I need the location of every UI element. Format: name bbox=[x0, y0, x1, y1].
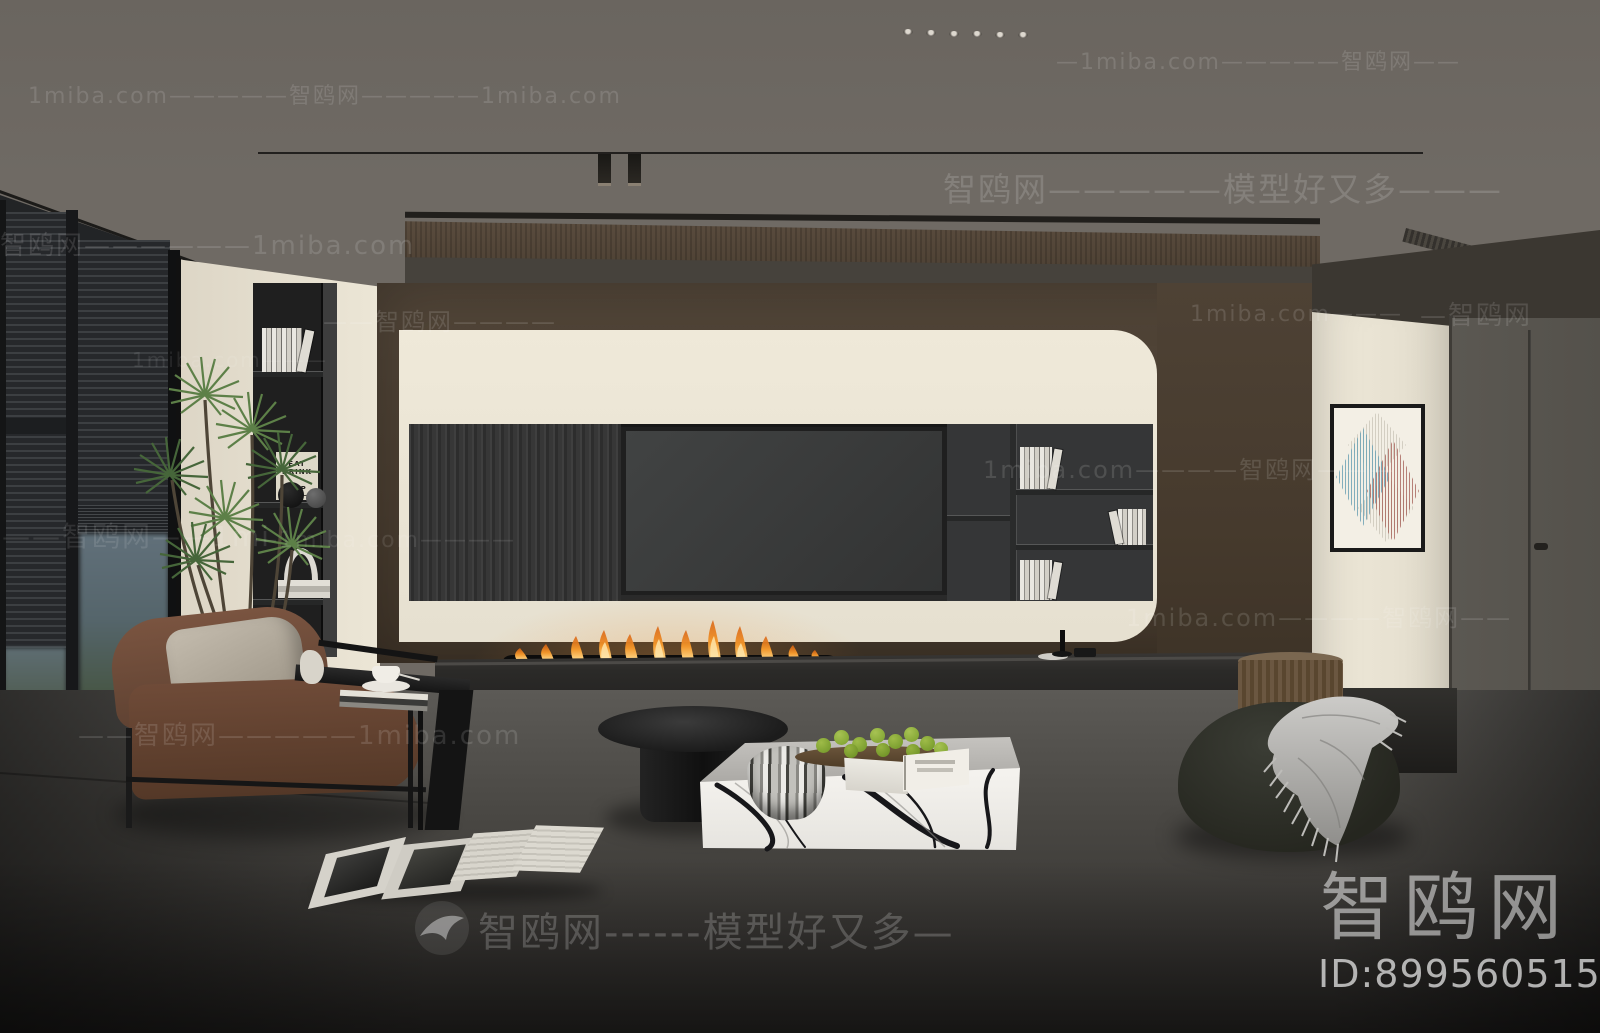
watermark: 1miba.com————智鸥网—— bbox=[1126, 598, 1512, 633]
watermark: 1miba.com——— bbox=[132, 348, 328, 372]
magazine-left-page bbox=[844, 758, 908, 795]
magazine-text-block bbox=[915, 760, 955, 764]
recessed-light bbox=[903, 29, 913, 35]
recessed-light bbox=[949, 31, 959, 37]
watermark: 1miba.com——— bbox=[1190, 302, 1403, 327]
tv-screen bbox=[626, 431, 942, 591]
watermark-slogan: 智鸥网------模型好又多— bbox=[478, 900, 955, 958]
site-logo-text: 智鸥网 bbox=[1320, 848, 1572, 955]
model-id-label: ID:899560515 bbox=[1318, 952, 1600, 996]
hearth-decor-base bbox=[1052, 651, 1072, 657]
recessed-light bbox=[1018, 32, 1028, 38]
apple bbox=[888, 734, 903, 749]
spotlight-cylinder bbox=[598, 154, 611, 186]
door-handle bbox=[1534, 543, 1548, 550]
watermark: 智鸥网——————1miba.com bbox=[0, 225, 415, 262]
fluted-panel bbox=[409, 424, 621, 601]
magazine-fold bbox=[904, 756, 906, 790]
apple bbox=[834, 730, 849, 745]
figurine bbox=[300, 650, 324, 684]
watermark: ——智鸥网———— bbox=[323, 302, 557, 337]
spotlight-cylinder bbox=[628, 154, 641, 186]
fireplace-flames bbox=[505, 608, 835, 663]
fringed-blanket bbox=[1240, 688, 1420, 863]
magazine-text-block bbox=[917, 768, 953, 772]
recessed-light bbox=[926, 30, 936, 36]
apple bbox=[920, 736, 935, 751]
watermark: —智鸥网 bbox=[1420, 295, 1532, 332]
niche-shelf-divider bbox=[947, 515, 1010, 521]
window-blinds-mid-bar bbox=[4, 418, 68, 434]
watermark: ——智鸥网—————1miba.com bbox=[78, 715, 521, 752]
watermark: ——智鸥网——1mi bbox=[2, 515, 271, 555]
window-mullion bbox=[66, 210, 78, 762]
watermark: —1miba.com—————智鸥网—— bbox=[1056, 44, 1461, 76]
hearth-decor-tray bbox=[1074, 648, 1096, 657]
watermark: 1miba.com—————智鸥网—————1miba.com bbox=[28, 78, 622, 110]
apple bbox=[870, 728, 885, 743]
bird-logo-icon bbox=[412, 898, 472, 958]
watermark: 智鸥网—————模型好又多——— bbox=[943, 163, 1503, 211]
living-room-render: EAT DRINK NAP bbox=[0, 0, 1600, 1033]
apple bbox=[816, 738, 831, 753]
watermark: —1miba.com———— bbox=[255, 528, 516, 553]
apple bbox=[904, 727, 919, 742]
niche-shelf-divider bbox=[1016, 489, 1153, 495]
recessed-light bbox=[972, 31, 982, 37]
open-magazine bbox=[845, 752, 975, 797]
window-mullion bbox=[0, 200, 6, 760]
watermark: 1miba.com————智鸥网——— bbox=[983, 450, 1395, 485]
niche-books bbox=[1020, 560, 1052, 600]
ceiling-track bbox=[258, 152, 1423, 154]
recessed-light bbox=[995, 32, 1005, 38]
